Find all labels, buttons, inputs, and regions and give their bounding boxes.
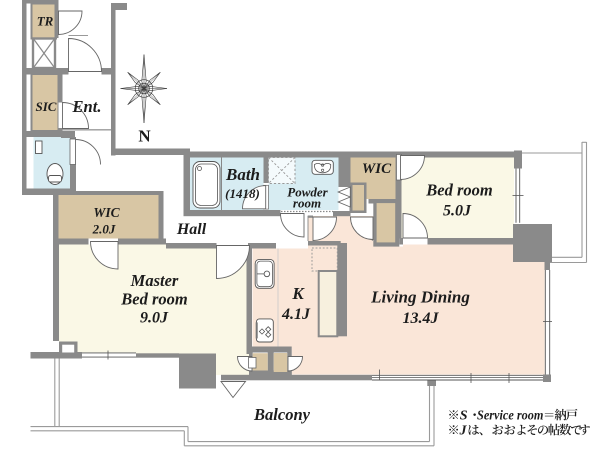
svg-text:TR: TR [37,14,54,29]
svg-text:9.0J: 9.0J [140,310,169,327]
svg-text:Bed room: Bed room [120,290,188,309]
svg-text:Bed room: Bed room [425,181,493,200]
svg-text:N: N [138,127,151,146]
svg-text:Living Dining: Living Dining [370,288,470,307]
svg-text:13.4J: 13.4J [403,310,440,327]
svg-text:J: J [459,423,468,438]
svg-text:room: room [293,196,321,211]
svg-text:4.1J: 4.1J [281,306,311,323]
svg-text:Master: Master [130,271,179,290]
svg-text:Bath: Bath [225,165,260,184]
svg-text:S: S [460,408,468,423]
svg-text:2.0J: 2.0J [92,222,116,237]
svg-text:K: K [291,284,305,303]
svg-text:WIC: WIC [362,161,392,177]
svg-text:Hall: Hall [176,221,207,238]
svg-text:Service room: Service room [477,407,544,422]
svg-text:(1418): (1418) [225,186,260,201]
svg-text:Ent.: Ent. [72,97,102,116]
svg-text:Balcony: Balcony [253,405,311,424]
svg-text:SIC: SIC [36,99,57,114]
svg-text:5.0J: 5.0J [443,203,472,220]
svg-text:WIC: WIC [93,205,120,220]
